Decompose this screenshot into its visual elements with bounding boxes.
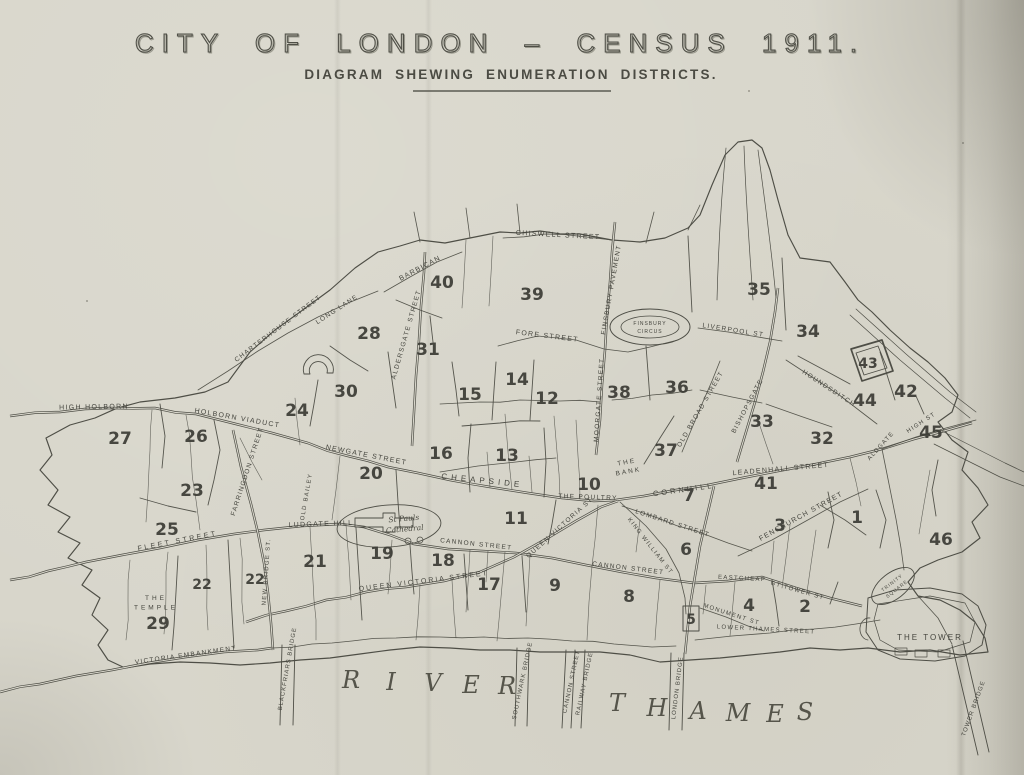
- lane-line: [462, 240, 466, 308]
- street-label-chiswell-street: CHISWELL STREET: [516, 230, 601, 241]
- lane-line: [771, 541, 774, 574]
- district-boundary-line: [462, 421, 540, 426]
- bridge-label-blackfriars-bridge: BLACKFRIARS BRIDGE: [278, 627, 299, 711]
- lane-line: [554, 416, 560, 497]
- district-number-4: 4: [743, 596, 755, 616]
- lane-line: [452, 580, 456, 638]
- river-thames-letter: R: [341, 666, 360, 694]
- district-number-40: 40: [430, 273, 454, 293]
- place-label-finsbury-circus: FINSBURYCIRCUS: [633, 321, 666, 335]
- district-boundary-line: [330, 346, 368, 371]
- river-thames-letter: V: [424, 669, 444, 697]
- lane-line: [466, 550, 470, 612]
- street-line: [414, 212, 420, 242]
- district-number-6: 6: [680, 540, 692, 560]
- lane-line: [592, 505, 598, 566]
- district-boundary-line: [688, 236, 692, 312]
- river-thames-letter: M: [725, 699, 752, 727]
- street-label-fenchurch-street: FENCHURCH STREET: [758, 491, 844, 543]
- place-label-the-bank: THEBANK: [613, 457, 641, 478]
- district-number-38: 38: [607, 383, 631, 403]
- tower-moat-bastion: [860, 618, 870, 640]
- district-number-14: 14: [505, 370, 529, 390]
- map-labels: 1234567891011121314151617181920212222232…: [59, 230, 987, 738]
- lane-line: [416, 585, 420, 640]
- street-label-leadenhall-street: LEADENHALL STREET: [732, 462, 829, 477]
- river-thames-letter: E: [765, 700, 784, 728]
- district-boundary-line: [172, 556, 178, 650]
- lane-line: [332, 456, 340, 520]
- district-number-36: 36: [665, 378, 689, 398]
- street-line: [498, 336, 678, 352]
- city-boundary-line: [40, 140, 988, 668]
- district-boundary-line: [208, 420, 220, 505]
- district-number-44: 44: [853, 391, 877, 411]
- street-line: [466, 208, 470, 238]
- lane-line: [310, 527, 316, 640]
- street-line: [646, 212, 654, 243]
- river-thames-letter: R: [497, 672, 516, 700]
- main-street-centre: [10, 408, 972, 501]
- district-number-25: 25: [155, 520, 179, 540]
- district-number-20: 20: [359, 464, 383, 484]
- page-subtitle: DIAGRAM SHEWING ENUMERATION DISTRICTS.: [304, 67, 717, 82]
- district-number-18: 18: [431, 551, 455, 571]
- river-thames-letter: T: [609, 689, 627, 717]
- lane-line: [240, 538, 244, 624]
- district-boundary-line: [544, 428, 546, 497]
- lane-line: [850, 458, 861, 506]
- district-number-34: 34: [796, 322, 820, 342]
- river-thames-letter: A: [687, 697, 706, 725]
- lane-line: [919, 470, 930, 534]
- main-street-line: [737, 288, 778, 462]
- lane-line: [126, 560, 130, 640]
- street-label-houndsditch: HOUNDSDITCH: [801, 369, 857, 409]
- district-number-27: 27: [108, 429, 132, 449]
- district-boundary-line: [492, 362, 496, 420]
- railway-lines-north: [717, 146, 776, 300]
- district-number-24: 24: [285, 401, 309, 421]
- place-label-st-pauls-cathedral: St PaulsCathedral: [385, 512, 425, 535]
- district-number-13: 13: [495, 446, 519, 466]
- district-number-19: 19: [370, 544, 394, 564]
- district-number-12: 12: [535, 389, 559, 409]
- census-map: CITY OF LONDON – CENSUS 1911. CITY OF LO…: [0, 0, 1024, 775]
- district-number-10: 10: [577, 475, 601, 495]
- street-line: [882, 449, 904, 570]
- tower-bridge-lines: [952, 641, 989, 755]
- district-boundary-line: [356, 528, 362, 620]
- district-number-33: 33: [750, 412, 774, 432]
- place-label-trinity-square: TRINITYSQUARE: [880, 573, 909, 600]
- district-number-1: 1: [851, 508, 863, 528]
- district-boundary-line: [876, 490, 886, 548]
- page-title: CITY OF LONDON – CENSUS 1911.: [135, 28, 865, 58]
- district-number-32: 32: [810, 429, 834, 449]
- street-label-ludgate-hill: LUDGATE HILL: [288, 520, 353, 529]
- district-number-22: 22: [192, 577, 211, 593]
- main-street-centre: [0, 648, 272, 692]
- district-boundary-line: [880, 352, 895, 400]
- street-label-old-bailey: OLD BAILEY: [300, 473, 314, 521]
- lane-line: [346, 525, 351, 600]
- lane-line: [529, 456, 532, 492]
- main-street-centre: [737, 288, 778, 462]
- district-number-5: 5: [686, 612, 696, 628]
- district-number-8: 8: [623, 587, 635, 607]
- district-number-45: 45: [919, 423, 943, 443]
- lane-line: [655, 580, 660, 640]
- district-number-30: 30: [334, 382, 358, 402]
- street-label-charterhouse-street: CHARTERHOUSE STREET: [233, 294, 322, 364]
- street-label-lower-thames-street: LOWER THAMES STREET: [717, 624, 816, 635]
- district-number-43: 43: [858, 356, 877, 372]
- district-number-39: 39: [520, 285, 544, 305]
- district-boundary-line: [464, 554, 468, 610]
- district-number-31: 31: [416, 340, 440, 360]
- district-boundary-line: [310, 380, 318, 426]
- district-number-28: 28: [357, 324, 381, 344]
- street-label-gt-tower-st: GT TOWER ST: [770, 580, 825, 601]
- lane-line: [526, 555, 530, 626]
- district-number-11: 11: [504, 509, 528, 529]
- street-label-high-holborn: HIGH HOLBORN: [59, 403, 129, 411]
- river-thames-letter: H: [646, 694, 669, 722]
- district-number-15: 15: [458, 385, 482, 405]
- district-number-16: 16: [429, 444, 453, 464]
- district-number-29: 29: [146, 614, 170, 634]
- street-label-moorgate-street: MOORGATE STREET: [593, 358, 606, 443]
- place-label-the-tower: THE TOWER: [897, 633, 963, 642]
- district-boundary-line: [228, 540, 234, 648]
- district-number-21: 21: [303, 552, 327, 572]
- lane-line: [489, 236, 493, 306]
- smithfield-rotunda: [303, 355, 333, 374]
- district-number-26: 26: [184, 427, 208, 447]
- street-label-fore-street: FORE STREET: [515, 329, 579, 344]
- street-line: [198, 291, 378, 390]
- district-boundary-line: [160, 404, 165, 468]
- river-thames-letter: E: [461, 671, 480, 699]
- district-number-41: 41: [754, 474, 778, 494]
- district-number-2: 2: [799, 597, 811, 617]
- street-label-new-bridge-st: NEW BRIDGE ST.: [262, 538, 273, 605]
- lane-line: [146, 410, 152, 522]
- street-label-victoria-embankment: VICTORIA EMBANKMENT: [135, 645, 238, 666]
- street-line: [272, 637, 676, 648]
- street-label-lombard-street: LOMBARD STREET: [634, 508, 710, 539]
- lane-line: [587, 566, 592, 640]
- district-number-22: 22: [245, 572, 264, 588]
- street-line: [766, 404, 832, 427]
- district-number-23: 23: [180, 481, 204, 501]
- district-boundary-line: [932, 460, 938, 516]
- street-label-liverpool-st: LIVERPOOL ST: [702, 322, 765, 339]
- street-label-queen-victoria-street: QUEEN VICTORIA STREET: [358, 570, 489, 593]
- header: CITY OF LONDON – CENSUS 1911. CITY OF LO…: [135, 28, 866, 91]
- district-boundary-line: [782, 258, 786, 330]
- tower-of-london-inner: [874, 596, 975, 652]
- street-line: [517, 204, 520, 233]
- district-boundary-line: [522, 556, 526, 612]
- river-thames-letter: S: [797, 698, 813, 726]
- district-number-37: 37: [654, 441, 678, 461]
- place-label-the-temple: THETEMPLE: [134, 595, 178, 612]
- district-number-42: 42: [894, 382, 918, 402]
- street-label-queen-victoria-st: QUEEN VICTORIA ST: [525, 496, 595, 560]
- district-number-35: 35: [747, 280, 771, 300]
- lane-line: [497, 552, 505, 641]
- lane-line: [807, 530, 816, 592]
- main-street-line: [0, 648, 272, 692]
- district-boundary-line: [646, 346, 650, 400]
- district-boundary-line: [430, 316, 433, 342]
- district-boundary-line: [530, 360, 534, 420]
- district-number-46: 46: [929, 530, 953, 550]
- district-number-9: 9: [549, 576, 561, 596]
- finsbury-circus-outline: [610, 309, 690, 345]
- river-thames-letter: I: [385, 668, 396, 696]
